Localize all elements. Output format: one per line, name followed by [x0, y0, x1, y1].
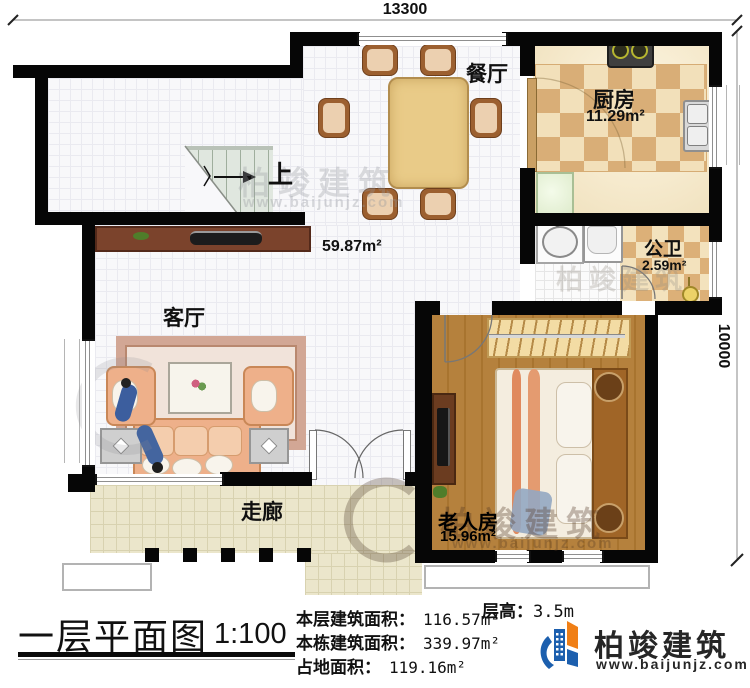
dining-chair: [420, 188, 456, 220]
stat-floor-area: 本层建筑面积：116.57m²: [296, 605, 500, 630]
dining-chair: [420, 44, 456, 76]
room-label-dining: 餐厅: [466, 58, 508, 88]
window: [82, 339, 95, 467]
bedroom-window-sill: [424, 565, 650, 589]
shower-stem: [688, 277, 690, 286]
entry-step-left: [62, 563, 152, 591]
bed-pillow: [556, 454, 592, 524]
wall-segment: [527, 550, 562, 563]
corridor-extension-floor: [305, 553, 422, 595]
wall-segment: [432, 550, 495, 563]
dimension-top-value: 13300: [370, 1, 440, 19]
stat-label: 占地面积：: [296, 658, 381, 677]
room-label-corridor: 走廊: [241, 496, 283, 526]
wall-segment: [82, 225, 95, 339]
dining-chair: [470, 98, 502, 138]
porch-pillar: [183, 548, 197, 562]
dining-table: [388, 77, 469, 189]
title-underline-thin: [18, 659, 295, 660]
room-area-bedroom: 15.96m²: [440, 528, 496, 545]
window: [562, 551, 604, 562]
floor-plan-canvas: 柏竣建筑 www.baijunjz.com 柏竣建筑 柏竣建筑 www.baij…: [0, 0, 750, 600]
side-table-right: [249, 428, 289, 464]
armchair-pillow: [251, 380, 277, 412]
sofa-cushion: [174, 426, 208, 456]
porch-pillar: [259, 548, 273, 562]
window: [357, 33, 508, 45]
plan-scale: 1:100: [214, 618, 287, 651]
brand-url: www.baijunjz.com: [596, 656, 749, 672]
wardrobe: [487, 318, 631, 358]
nightstand-medallion: [594, 503, 624, 533]
sideboard-tray: [190, 231, 262, 245]
plant-icon: [433, 486, 447, 498]
title-underline: [18, 652, 295, 657]
porch-pillar: [297, 548, 311, 562]
wall-segment: [520, 226, 535, 264]
nightstand-medallion: [594, 372, 624, 402]
dining-chair: [362, 188, 398, 220]
wash-basin: [542, 226, 578, 258]
wall-segment: [520, 213, 722, 226]
room-label-living: 客厅: [163, 302, 205, 332]
wall-segment: [13, 65, 303, 78]
wall-segment: [502, 32, 722, 46]
stat-land-area: 占地面积：119.16m²: [296, 653, 466, 678]
dimension-right-value: 10000: [714, 315, 732, 377]
dining-chair: [362, 44, 398, 76]
wall-segment: [520, 46, 535, 76]
window: [495, 551, 531, 562]
bed-pillow: [556, 382, 592, 448]
wall-segment: [220, 472, 312, 486]
window: [709, 85, 722, 169]
bed-blanket: [509, 487, 553, 536]
wall-segment: [35, 212, 305, 225]
sideboard-plant: [133, 232, 149, 240]
kitchen-door-leaf: [527, 78, 537, 172]
window: [709, 240, 722, 299]
title-block: 一层平面图 1:100 本层建筑面积：116.57m² 本栋建筑面积：339.9…: [0, 595, 750, 688]
wall-segment: [709, 165, 722, 217]
brand-logo-icon: [537, 619, 589, 673]
wardrobe-rod: [489, 334, 625, 338]
dining-chair: [318, 98, 350, 138]
wall-segment: [68, 474, 95, 492]
sink-basin: [687, 104, 708, 124]
hall-area-value: 59.87m²: [322, 238, 382, 256]
wall-segment: [492, 301, 622, 315]
porch-pillar: [221, 548, 235, 562]
living-window-outer-sill: [64, 339, 80, 463]
stat-value: 339.97m²: [423, 634, 500, 653]
stat-label: 本栋建筑面积：: [296, 634, 415, 653]
stat-building-area: 本栋建筑面积：339.97m²: [296, 629, 500, 654]
person-head: [121, 378, 131, 388]
fridge: [536, 172, 574, 215]
room-area-bath: 2.59m²: [642, 257, 686, 273]
coffee-table-decor: [190, 378, 206, 392]
wall-segment: [35, 78, 48, 225]
stairs-up-label: 上: [268, 155, 293, 191]
stat-label: 本层建筑面积：: [296, 610, 415, 629]
washing-machine-lid: [587, 226, 617, 254]
wall-segment: [290, 32, 360, 46]
sink-basin: [687, 126, 708, 146]
window: [95, 474, 224, 485]
wall-segment: [415, 301, 432, 563]
floor-height-label: 层高：: [482, 602, 533, 621]
wall-segment: [645, 315, 658, 563]
kitchen-window-outer-sill: [726, 85, 740, 165]
sofa-cushion: [208, 426, 242, 456]
stat-value: 119.16m²: [389, 658, 466, 677]
wall-segment: [709, 46, 722, 85]
person-head: [152, 462, 163, 473]
room-area-kitchen: 11.29m²: [586, 108, 645, 126]
wall-segment: [422, 301, 440, 315]
wall-segment: [520, 168, 535, 213]
tv-screen: [437, 408, 450, 466]
porch-pillar: [145, 548, 159, 562]
